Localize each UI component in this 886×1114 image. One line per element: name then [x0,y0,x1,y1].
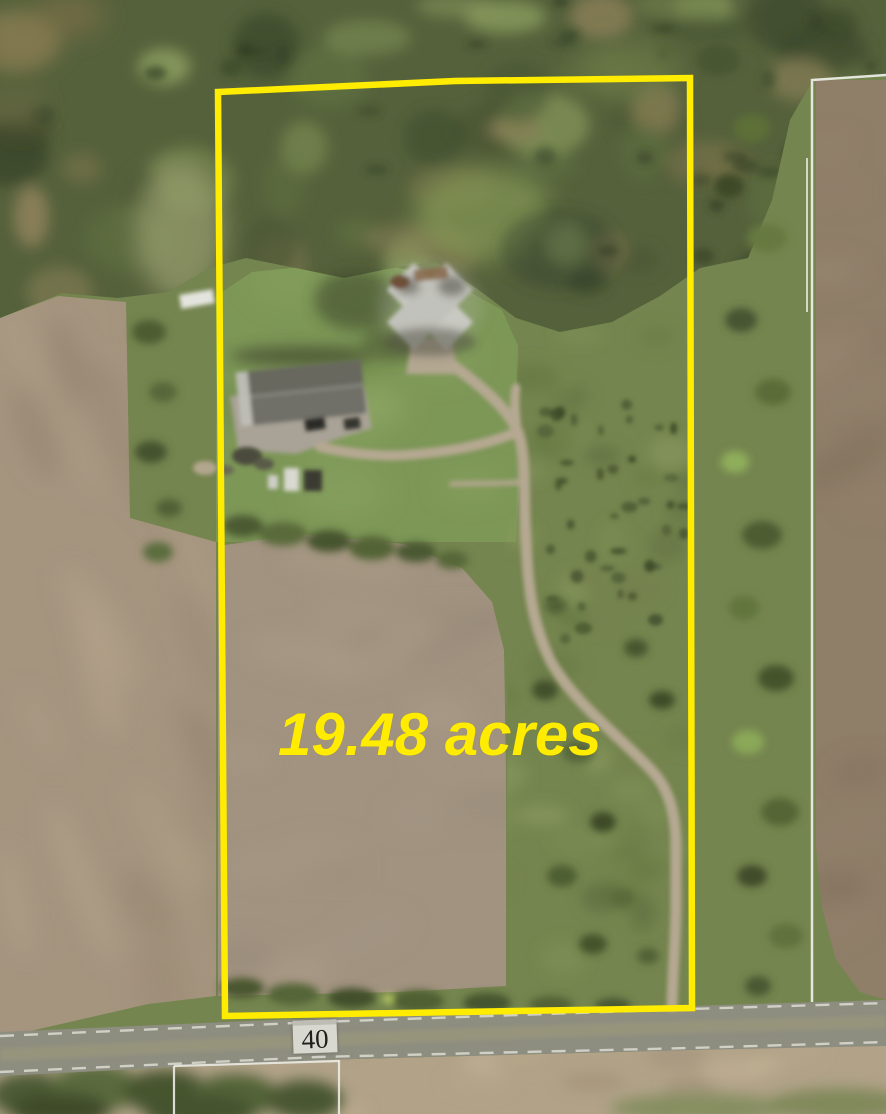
debris [254,458,274,470]
road-number-sign: 40 [292,1019,337,1054]
aerial-imagery [0,0,886,1114]
trailer [304,470,322,491]
road-number: 40 [301,1025,329,1053]
house [378,262,482,356]
aerial-map: 19.48 acres 40 [0,0,886,1114]
debris [193,461,217,475]
vehicle [343,417,360,430]
trailer [284,468,299,491]
trailer [268,475,278,489]
parcel-area-label: 19.48 acres [278,700,602,769]
